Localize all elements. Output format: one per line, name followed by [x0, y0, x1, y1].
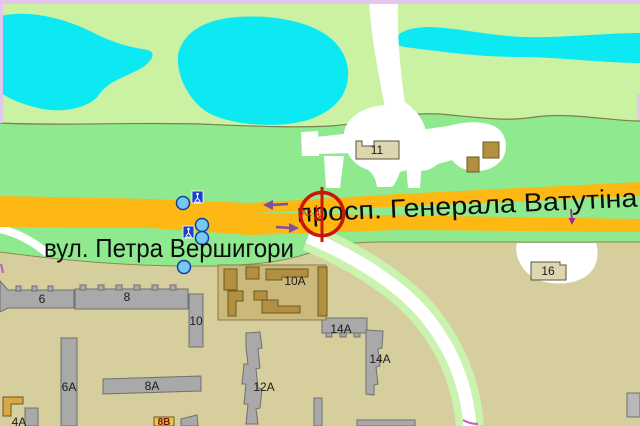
poi-marker-2[interactable]	[196, 219, 209, 232]
label-building-8v: 8В	[158, 417, 171, 426]
building-14a-notch	[354, 333, 360, 337]
building-8	[75, 289, 188, 309]
building-6-notch	[16, 286, 21, 291]
label-building-8a: 8А	[145, 379, 160, 393]
building-8-notch	[98, 285, 104, 290]
building-8-notch	[80, 285, 86, 290]
label-building-10a: 10А	[284, 274, 305, 288]
building-8-notch	[134, 285, 140, 290]
building-8-notch	[170, 285, 176, 290]
lake-central-water	[178, 17, 348, 125]
footpath-stub-east	[406, 160, 422, 188]
poi-marker-1[interactable]	[177, 197, 190, 210]
label-building-4a: 4А	[12, 415, 27, 426]
footpath-rect-west	[301, 131, 319, 156]
pedestrian-crossing-icon	[192, 191, 203, 203]
building-10a-block	[254, 291, 267, 300]
label-building-14a-mid: 14А	[369, 352, 390, 366]
map-margin-left	[0, 0, 3, 123]
building-6-notch	[32, 286, 37, 291]
building-fragment	[25, 408, 38, 426]
building-farm-block	[467, 157, 479, 172]
building-8-notch	[152, 285, 158, 290]
marker-code: А2-4	[301, 208, 320, 218]
building-10a-block	[246, 267, 259, 279]
label-building-8: 8	[124, 290, 131, 304]
label-building-16: 16	[541, 264, 555, 278]
label-building-6a: 6А	[62, 380, 77, 394]
building-10a-block	[318, 267, 327, 316]
label-building-12a: 12А	[253, 380, 274, 394]
label-building-10: 10	[189, 314, 203, 328]
building-fragment	[627, 393, 640, 417]
building-8-notch	[116, 285, 122, 290]
map-canvas: просп. Генерала Ватутіна вул. Петра Верш…	[0, 0, 640, 426]
building-6-notch	[48, 286, 53, 291]
map-viewport: просп. Генерала Ватутіна вул. Петра Верш…	[0, 0, 640, 426]
building-farm-block	[483, 142, 499, 158]
building-10a-block	[224, 269, 237, 290]
building-fragment	[357, 420, 415, 426]
label-building-6: 6	[39, 292, 46, 306]
street-label-street: вул. Петра Вершигори	[44, 233, 294, 263]
label-building-11: 11	[371, 143, 384, 157]
label-building-14a-top: 14А	[330, 322, 351, 336]
building-fragment	[314, 398, 322, 426]
map-margin-top	[0, 0, 640, 4]
